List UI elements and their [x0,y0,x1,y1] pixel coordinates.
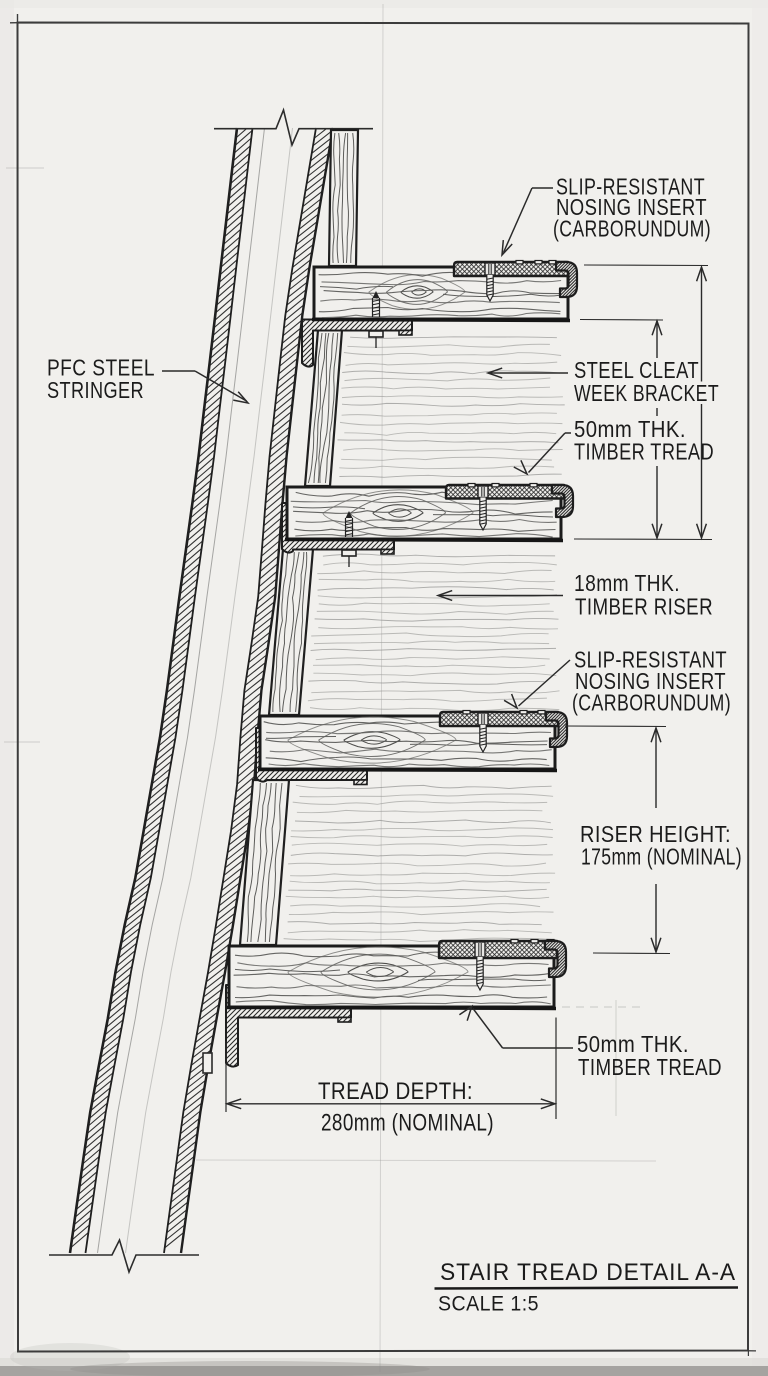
svg-text:18mm THK.: 18mm THK. [574,570,680,596]
svg-text:TIMBER TREAD: TIMBER TREAD [574,439,714,465]
svg-text:175mm (NOMINAL): 175mm (NOMINAL) [581,844,742,870]
svg-text:STAIR TREAD DETAIL A-A: STAIR TREAD DETAIL A-A [440,1259,736,1286]
svg-text:(CARBORUNDUM): (CARBORUNDUM) [553,216,711,242]
svg-text:TIMBER TREAD: TIMBER TREAD [578,1054,722,1080]
svg-text:SCALE 1:5: SCALE 1:5 [438,1293,539,1316]
svg-text:STRINGER: STRINGER [47,377,144,403]
svg-text:(CARBORUNDUM): (CARBORUNDUM) [572,690,731,716]
svg-text:280mm (NOMINAL): 280mm (NOMINAL) [321,1110,494,1137]
svg-text:TREAD DEPTH:: TREAD DEPTH: [318,1078,473,1105]
svg-text:WEEK BRACKET: WEEK BRACKET [574,380,719,406]
svg-text:TIMBER RISER: TIMBER RISER [575,594,713,620]
